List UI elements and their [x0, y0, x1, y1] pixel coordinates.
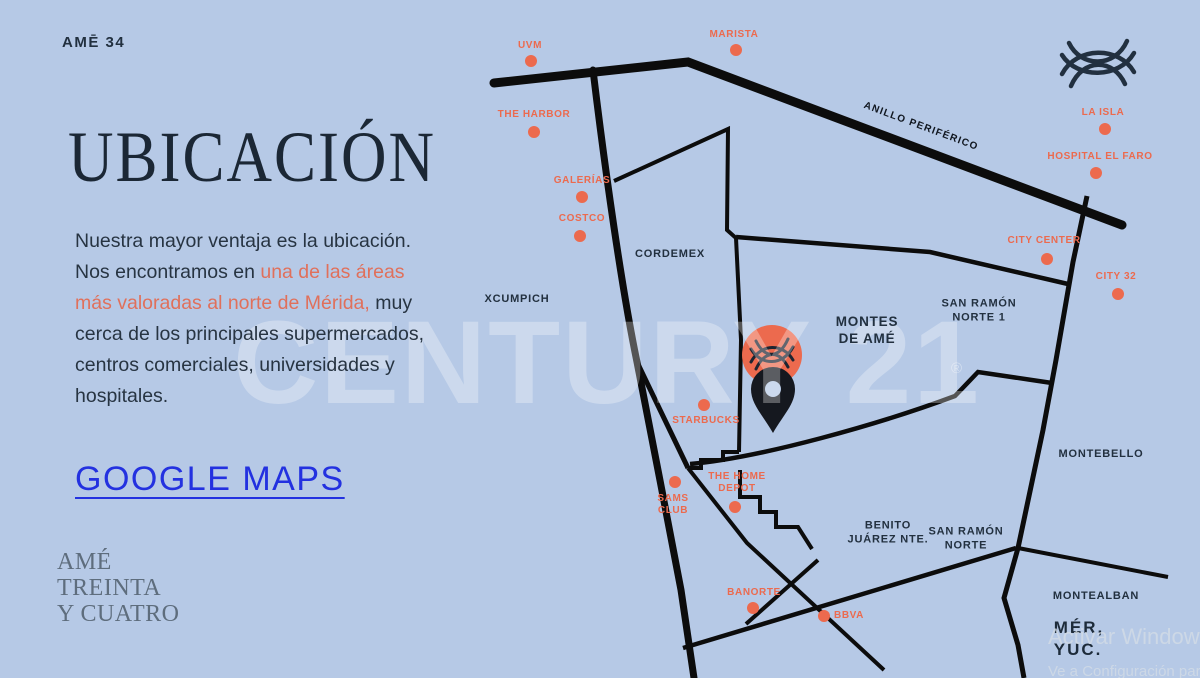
brand-monogram-top-icon [1062, 41, 1134, 86]
poi-dot-la-isla [1099, 123, 1111, 135]
poi-label-city-center: CITY CENTER [1007, 235, 1080, 247]
poi-label-hospital-el-faro: HOSPITAL EL FARO [1047, 151, 1152, 163]
poi-label-the-home-depot: THE HOMEDEPOT [708, 471, 766, 495]
area-label-cordemex: CORDEMEX [635, 248, 705, 262]
poi-label-starbucks: STARBUCKS [672, 415, 739, 427]
poi-label-uvm: UVM [518, 40, 542, 52]
area-label-xcumpich: XCUMPICH [484, 293, 549, 307]
poi-label-galer-as: GALERÍAS [554, 175, 610, 187]
area-label-san-ram-n-norte-1: SAN RAMÓNNORTE 1 [941, 297, 1016, 325]
windows-activation-watermark-line1: Activar Windows [1048, 624, 1200, 650]
poi-dot-the-home-depot [729, 501, 741, 513]
road-montes-de-ame [690, 372, 1052, 464]
area-label-montebello: MONTEBELLO [1059, 448, 1144, 462]
poi-label-the-harbor: THE HARBOR [498, 109, 571, 121]
poi-dot-uvm [525, 55, 537, 67]
area-label-benito-ju-rez-nte: BENITOJUÁREZ NTE. [848, 519, 929, 547]
poi-label-marista: MARISTA [709, 29, 758, 41]
poi-dot-costco [574, 230, 586, 242]
poi-label-city-32: CITY 32 [1096, 271, 1137, 283]
poi-label-bbva: BBVA [834, 610, 864, 622]
road-anillo-periferico [494, 62, 1122, 225]
brand-logo-line-1: AMÉ [57, 549, 179, 575]
slide-canvas: CENTURY 21 ® ANILLO PERIFÉRICO UVMMARIST… [0, 0, 1200, 678]
brand-logo-line-2: TREINTA [57, 575, 179, 601]
road-east-vertical [1004, 196, 1087, 678]
area-label-san-ram-n-norte: SAN RAMÓNNORTE [928, 525, 1003, 553]
poi-dot-city-32 [1112, 288, 1124, 300]
windows-activation-watermark-line2: Ve a Configuración para activar Windows. [1048, 663, 1200, 678]
area-label-montealban: MONTEALBAN [1053, 590, 1139, 604]
page-title: UBICACIÓN [68, 116, 436, 199]
intro-paragraph: Nuestra mayor ventaja es la ubicación. N… [75, 226, 427, 412]
road-cordemex-boundary [614, 129, 741, 452]
poi-dot-city-center [1041, 253, 1053, 265]
poi-dot-the-harbor [528, 126, 540, 138]
poi-dot-sams-club [669, 476, 681, 488]
brand-wordmark: AMĒ 34 [62, 34, 125, 51]
poi-dot-marista [730, 44, 742, 56]
brand-logo-line-3: Y CUATRO [57, 601, 179, 627]
poi-label-costco: COSTCO [559, 213, 605, 225]
brand-logo: AMÉ TREINTA Y CUATRO [57, 549, 179, 627]
poi-label-la-isla: LA ISLA [1082, 107, 1125, 119]
poi-dot-hospital-el-faro [1090, 167, 1102, 179]
poi-label-sams-club: SAMSCLUB [657, 493, 688, 517]
poi-dot-galer-as [576, 191, 588, 203]
area-label-montes-de-am: MONTESDE AMÉ [836, 314, 899, 348]
poi-label-banorte: BANORTE [727, 587, 781, 599]
poi-dot-starbucks [698, 399, 710, 411]
poi-dot-bbva [818, 610, 830, 622]
google-maps-link[interactable]: GOOGLE MAPS [75, 460, 345, 499]
location-pin-icon [751, 367, 795, 433]
poi-dot-banorte [747, 602, 759, 614]
road-montealban-branch [1018, 548, 1168, 577]
